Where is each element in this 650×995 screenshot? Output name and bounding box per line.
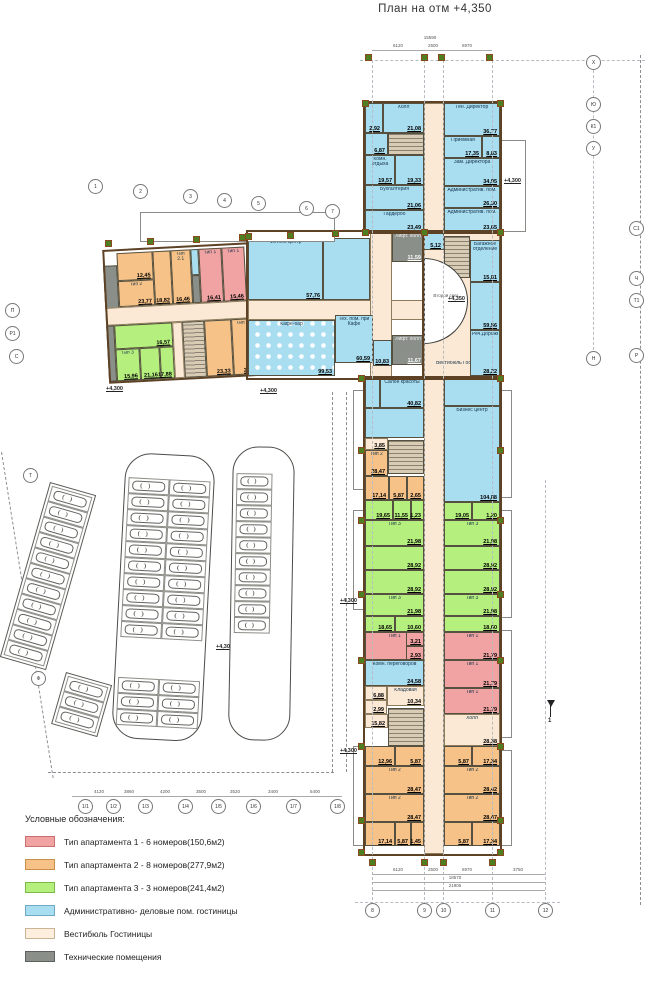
room-label: Зам. Директора xyxy=(446,160,498,165)
room xyxy=(500,510,512,618)
column-marker xyxy=(287,232,294,239)
room-area: 24,58 xyxy=(407,679,421,685)
room: 3,85 xyxy=(365,438,388,450)
room-label: Багажное отделение xyxy=(472,242,498,253)
room-area: 18,60 xyxy=(483,625,497,631)
room: 17,14 xyxy=(365,822,395,846)
car-icon xyxy=(125,608,158,620)
building-wing: 12,45Тип 223,7718,82Тип 2.116,46Тип 116,… xyxy=(102,242,261,386)
parking-area xyxy=(228,446,295,741)
room-area: 104,88 xyxy=(480,495,497,501)
column-marker xyxy=(358,743,365,750)
room: Приемная17,35 xyxy=(444,136,482,158)
room: Тип 321,98 xyxy=(365,594,424,616)
dimension-line xyxy=(72,796,342,797)
room-area: 28,92 xyxy=(407,563,421,569)
room-label: Тип 3 xyxy=(367,522,422,527)
room: Бухгалтерия21,06 xyxy=(365,185,424,210)
room-label: Тип 2 xyxy=(446,796,498,801)
room-area: 21,16 xyxy=(144,372,158,379)
parking-stall xyxy=(235,553,271,570)
axis-bubble: Т xyxy=(23,468,38,483)
room-area: 5,87 xyxy=(410,759,421,765)
legend: Условные обозначения: Тип апартамента 1 … xyxy=(25,814,238,968)
room-label: Тех. пом. при Кафе xyxy=(337,317,371,328)
room-area: 28,92 xyxy=(407,587,421,593)
column-marker xyxy=(421,859,428,866)
room: 5,87 xyxy=(389,476,407,500)
room: 19,33 xyxy=(395,155,424,185)
room-label: Тип 1 xyxy=(223,249,242,255)
parking-stall xyxy=(236,473,272,490)
room-area: 17,34 xyxy=(483,759,497,765)
car-icon xyxy=(166,610,199,622)
room-label: Бухгалтерия xyxy=(367,187,422,192)
room-area: 17,34 xyxy=(483,839,497,845)
axis-bubble: 11 xyxy=(485,903,500,918)
room-area: 28,47 xyxy=(407,815,421,821)
car-icon xyxy=(129,528,162,540)
room xyxy=(500,630,512,738)
axis-line xyxy=(372,60,373,905)
room-area: 21,98 xyxy=(407,609,421,615)
dimension-text: 2500 xyxy=(428,43,438,48)
axis-bubble: Р1 xyxy=(5,326,20,341)
column-marker xyxy=(358,447,365,454)
room-label: Тип 2.1 xyxy=(172,251,189,263)
legend-label: Административно- деловые пом. гостиницы xyxy=(64,906,238,916)
room: Комн. переговоров24,58 xyxy=(365,660,424,686)
parking-area xyxy=(0,482,96,670)
room-area: 21,79 xyxy=(483,653,497,659)
room: 16,57 xyxy=(114,322,173,349)
room: Комн. отдыха19,57 xyxy=(365,155,395,185)
room-label: Холл xyxy=(446,716,498,721)
room-area: 3,85 xyxy=(374,443,385,449)
axis-bubble: 1/4 xyxy=(178,799,193,814)
room-label: Тип 2 xyxy=(367,452,386,457)
legend-swatch xyxy=(25,859,55,870)
room: 1,20 xyxy=(472,502,500,520)
car-icon xyxy=(130,512,163,524)
room-area: 21,79 xyxy=(483,681,497,687)
room: 5,87 xyxy=(395,746,424,766)
room: 3,21 xyxy=(406,632,424,646)
car-icon xyxy=(132,480,165,492)
dimension-text: 3860 xyxy=(124,789,134,794)
legend-item: Административно- деловые пом. гостиницы xyxy=(25,899,238,922)
car-icon xyxy=(131,496,164,508)
room: Тип 228,47 xyxy=(365,766,424,794)
car-icon xyxy=(168,578,201,590)
axis-bubble: Н xyxy=(586,351,601,366)
room: 17,34 xyxy=(472,746,500,766)
room xyxy=(353,390,365,490)
column-marker xyxy=(362,100,369,107)
room-area: 21,98 xyxy=(483,609,497,615)
legend-label: Тип апартамента 1 - 6 номеров(150,6м2) xyxy=(64,837,225,847)
room-label: Салон красоты xyxy=(382,380,422,385)
room-area: 28,47 xyxy=(371,469,385,475)
room-area: 21,08 xyxy=(407,126,421,132)
room: Лифт. холл11,67 xyxy=(392,335,424,365)
column-marker xyxy=(497,849,504,856)
car-icon xyxy=(238,588,266,598)
car-icon xyxy=(240,476,268,486)
axis-bubble: Т1 xyxy=(629,293,644,308)
car-icon xyxy=(172,499,205,511)
room-label: Холл xyxy=(385,105,422,110)
room-area: 5,87 xyxy=(458,759,469,765)
room-area: 15,82 xyxy=(371,721,385,727)
axis-bubble: 10 xyxy=(436,903,451,918)
room xyxy=(353,746,365,846)
car-icon xyxy=(162,698,195,710)
room-area: 17,14 xyxy=(378,839,392,845)
axis-bubble: 4 xyxy=(217,193,232,208)
car-icon xyxy=(240,508,268,518)
dimension-text: 6120 xyxy=(393,867,403,872)
room-area: 28,92 xyxy=(483,587,497,593)
column-marker xyxy=(369,859,376,866)
room-area: 6,88 xyxy=(373,693,384,699)
room-area: 23,65 xyxy=(483,225,497,231)
axis-bubble: Ю xyxy=(586,97,601,112)
axis-line xyxy=(360,60,645,61)
parking-stall xyxy=(236,505,272,522)
room-area: 6,87 xyxy=(374,148,385,154)
room: Тип 321,98 xyxy=(365,520,424,546)
car-icon xyxy=(240,492,268,502)
axis-bubble: 12 xyxy=(538,903,553,918)
car-icon xyxy=(239,572,267,582)
room-label: Приемная xyxy=(446,138,480,143)
axis-bubble: 1/3 xyxy=(138,799,153,814)
section-marker: 1 xyxy=(545,700,557,726)
room-area: 15,96 xyxy=(124,373,138,380)
room-area: 15,81 xyxy=(483,275,497,281)
room-area: 23,33 xyxy=(217,368,231,375)
room-area: 34,95 xyxy=(483,179,497,185)
axis-bubble: Р xyxy=(629,348,644,363)
column-marker xyxy=(358,657,365,664)
room: 59,56 xyxy=(470,282,500,330)
room-label: Тип 3 xyxy=(446,522,498,527)
legend-item: Технические помещения xyxy=(25,945,238,968)
column-marker xyxy=(193,236,200,243)
room-area: 12,45 xyxy=(137,272,151,279)
room-label: Ген. Директор xyxy=(446,105,498,110)
dimension-text: 6120 xyxy=(393,43,403,48)
room: Тип 228,47 xyxy=(365,794,424,822)
car-icon xyxy=(162,682,195,694)
car-icon xyxy=(161,714,194,726)
room: 17,34 xyxy=(472,822,500,846)
axis-bubble: С xyxy=(9,349,24,364)
room-area: 5,87 xyxy=(393,493,404,499)
axis-bubble: У xyxy=(586,141,601,156)
room xyxy=(140,212,335,242)
parking-stall xyxy=(235,537,271,554)
room: Гардероб23,49 xyxy=(365,210,424,232)
column-marker xyxy=(489,859,496,866)
car-icon xyxy=(238,620,266,630)
column-marker xyxy=(497,817,504,824)
room: Тип 228,47 xyxy=(365,450,388,476)
dimension-text: 4120 xyxy=(94,789,104,794)
room: 1,23 xyxy=(411,500,424,520)
legend-item: Вестибюль Гостиницы xyxy=(25,922,238,945)
room-label: Тип 1 xyxy=(446,662,498,667)
room: 10,60 xyxy=(395,616,424,632)
room: Тип 315,96 xyxy=(115,348,141,381)
room-area: 5,87 xyxy=(397,839,408,845)
axis-bubble: 1/6 xyxy=(246,799,261,814)
room-area: 18,82 xyxy=(156,297,170,304)
column-marker xyxy=(421,229,428,236)
axis-bubble: К1 xyxy=(586,119,601,134)
room-area: 11,55 xyxy=(395,513,408,519)
parking-area xyxy=(111,452,216,742)
car-icon xyxy=(170,530,203,542)
axis-bubble: 1/5 xyxy=(211,799,226,814)
room: 6,87 xyxy=(365,133,388,155)
boundary-line xyxy=(640,55,641,905)
room-label: Бизнес центр xyxy=(446,408,498,413)
axis-line xyxy=(355,902,560,903)
axis-bubble: 3 xyxy=(183,189,198,204)
room: 28,92 xyxy=(365,570,424,594)
room-label: Тип 2 xyxy=(367,796,422,801)
car-icon xyxy=(128,560,161,572)
room-label: Кафе-бар xyxy=(250,322,333,327)
dimension-line xyxy=(372,50,492,51)
legend-label: Тип апартамента 2 - 8 номеров(277,9м2) xyxy=(64,860,225,870)
column-marker xyxy=(497,229,504,236)
dimension-text: 2500 xyxy=(428,867,438,872)
axis-bubble: 1 xyxy=(88,179,103,194)
car-icon xyxy=(129,544,162,556)
room: 23,33 xyxy=(204,319,234,376)
room-label: Лифт. холл xyxy=(394,337,422,342)
room: 2,99 xyxy=(365,700,387,714)
room xyxy=(323,238,370,300)
room-area: 23,49 xyxy=(407,225,421,231)
axis-bubble: П xyxy=(5,303,20,318)
room-label: Административ. пом. xyxy=(446,188,498,193)
room xyxy=(365,408,424,438)
legend-item: Тип апартамента 2 - 8 номеров(277,9м2) xyxy=(25,853,238,876)
room xyxy=(424,378,444,854)
room: 2,92 xyxy=(365,103,383,133)
room-area: 19,05 xyxy=(455,513,469,519)
dimension-text: 18570 xyxy=(449,875,462,880)
room-area: 17,14 xyxy=(372,493,386,499)
stairs xyxy=(388,133,424,155)
room: Тип 223,77 xyxy=(118,279,155,307)
room-area: 16,57 xyxy=(156,340,170,347)
room: Холл21,08 xyxy=(383,103,424,133)
room-area: 28,92 xyxy=(483,563,497,569)
legend-label: Технические помещения xyxy=(64,952,161,962)
room-area: 28,47 xyxy=(407,787,421,793)
room-area: 11,67 xyxy=(408,358,421,364)
room: 28,92 xyxy=(365,546,424,570)
column-marker xyxy=(438,54,445,61)
floor-plan-sheet: План на отм +4,350 12,45Тип 223,7718,82Т… xyxy=(0,0,650,995)
dimension-text: 6970 xyxy=(462,43,472,48)
room xyxy=(424,103,444,232)
room-area: 19,57 xyxy=(378,178,392,184)
axis-bubble: 8 xyxy=(365,903,380,918)
column-marker xyxy=(497,447,504,454)
legend-label: Вестибюль Гостиницы xyxy=(64,929,152,939)
legend-item: Тип апартамента 3 - 3 номеров(241,4м2) xyxy=(25,876,238,899)
dimension-text: 4200 xyxy=(160,789,170,794)
axis-bubble: Х xyxy=(586,55,601,70)
room: 1,45 xyxy=(411,822,424,846)
legend-items: Тип апартамента 1 - 6 номеров(150,6м2)Ти… xyxy=(25,830,238,968)
axis-line xyxy=(545,480,546,905)
room-area: 23,77 xyxy=(138,298,152,305)
stairs xyxy=(388,440,424,474)
room: 8,83 xyxy=(482,136,500,158)
axis-bubble: С1 xyxy=(629,221,644,236)
room: Салон красоты40,82 xyxy=(380,378,424,408)
dimension-text: 3400 xyxy=(268,789,278,794)
column-marker xyxy=(105,240,112,247)
axis-bubble: 1/8 xyxy=(330,799,345,814)
car-icon xyxy=(239,556,267,566)
column-marker xyxy=(147,238,154,245)
column-marker xyxy=(358,591,365,598)
room-area: 40,82 xyxy=(407,401,421,407)
legend-item: Тип апартамента 1 - 6 номеров(150,6м2) xyxy=(25,830,238,853)
room-area: 17,35 xyxy=(465,151,479,157)
room: Лифт. холл11,59 xyxy=(392,232,424,262)
room-label: Лифт. холл xyxy=(394,234,422,239)
car-icon xyxy=(167,594,200,606)
axis-line xyxy=(443,60,444,905)
room-area: 28,38 xyxy=(483,739,497,745)
room-area: 57,76 xyxy=(306,293,320,299)
car-icon xyxy=(165,626,198,638)
room-label: Тип 2 xyxy=(367,768,422,773)
boundary-line xyxy=(332,392,333,772)
room-label: Тип 1 xyxy=(446,634,498,639)
room-label: Тип 1 xyxy=(200,250,219,256)
parking-stall xyxy=(161,623,203,641)
room-label: Тип 1 xyxy=(446,690,498,695)
dimension-text: 6970 xyxy=(462,867,472,872)
dimension-text: 21905 xyxy=(449,883,462,888)
axis-bubble: 9 xyxy=(417,903,432,918)
column-marker xyxy=(497,100,504,107)
stairs xyxy=(182,321,207,378)
room xyxy=(500,140,526,232)
room: Тех. пом. при Кафе60,59 xyxy=(335,315,373,363)
room: 2,65 xyxy=(407,476,424,500)
room: Кладовая10,34 xyxy=(387,686,424,706)
boundary-line xyxy=(346,392,347,772)
axis-bubble: 7 xyxy=(325,204,340,219)
room: Реч.Дорожк.28,22 xyxy=(470,330,500,376)
room-area: 10,34 xyxy=(407,699,421,705)
column-marker xyxy=(332,230,339,237)
room-area: 21,98 xyxy=(407,539,421,545)
level-mark: +4,350 xyxy=(448,296,465,302)
room: 5,87 xyxy=(444,746,472,766)
column-marker xyxy=(497,743,504,750)
car-icon xyxy=(169,562,202,574)
room-label: Административ. пом. xyxy=(446,210,498,215)
room-area: 28,22 xyxy=(483,369,497,375)
room-label: Тип 2 xyxy=(446,768,498,773)
column-marker xyxy=(486,54,493,61)
level-mark: +4,300 xyxy=(340,748,357,754)
room-label: Тип 3 xyxy=(118,350,138,356)
column-marker xyxy=(362,229,369,236)
room: Тип 115,46 xyxy=(221,247,247,302)
room: 18,65 xyxy=(365,616,395,632)
axis-bubble: Ч xyxy=(629,271,644,286)
car-icon xyxy=(120,712,153,724)
room: 11,55 xyxy=(393,500,411,520)
room: 19,05 xyxy=(444,502,472,520)
room xyxy=(500,750,512,846)
room-label: Реч.Дорожк. xyxy=(472,332,498,337)
room-area: 1,45 xyxy=(410,839,421,845)
room: Багажное отделение15,81 xyxy=(470,240,500,282)
room: 10,83 xyxy=(373,340,392,366)
column-marker xyxy=(497,375,504,382)
room-area: 21,98 xyxy=(483,539,497,545)
column-marker xyxy=(245,233,252,240)
column-marker xyxy=(497,657,504,664)
room: 5,87 xyxy=(395,822,411,846)
column-marker xyxy=(358,817,365,824)
column-marker xyxy=(440,859,447,866)
car-icon xyxy=(239,540,267,550)
column-marker xyxy=(358,517,365,524)
room: 15,82 xyxy=(365,714,388,728)
legend-header: Условные обозначения: xyxy=(25,814,238,824)
level-mark: +4,300 xyxy=(340,598,357,604)
room-area: 26,30 xyxy=(483,201,497,207)
room-area: 2,65 xyxy=(410,493,421,499)
axis-bubble: 1/2 xyxy=(106,799,121,814)
car-icon xyxy=(171,514,204,526)
room-area: 5,12 xyxy=(430,243,441,249)
room-area: 21,79 xyxy=(483,707,497,713)
room: 6,88 xyxy=(365,686,387,700)
room-label: Тип 3 xyxy=(446,596,498,601)
room-area: 11,59 xyxy=(408,255,421,261)
room-area: 2,93 xyxy=(410,653,421,659)
room-label: Гардероб xyxy=(367,212,422,217)
room-area: 19,65 xyxy=(376,513,390,519)
car-icon xyxy=(239,524,267,534)
room-area: 60,59 xyxy=(356,356,370,362)
room-area: 16,46 xyxy=(176,296,190,303)
car-icon xyxy=(170,546,203,558)
legend-swatch xyxy=(25,928,55,939)
column-marker xyxy=(358,849,365,856)
axis-line xyxy=(424,60,425,905)
dimension-line xyxy=(372,890,545,891)
room-area: 5,87 xyxy=(458,839,469,845)
parking-area xyxy=(51,672,112,737)
